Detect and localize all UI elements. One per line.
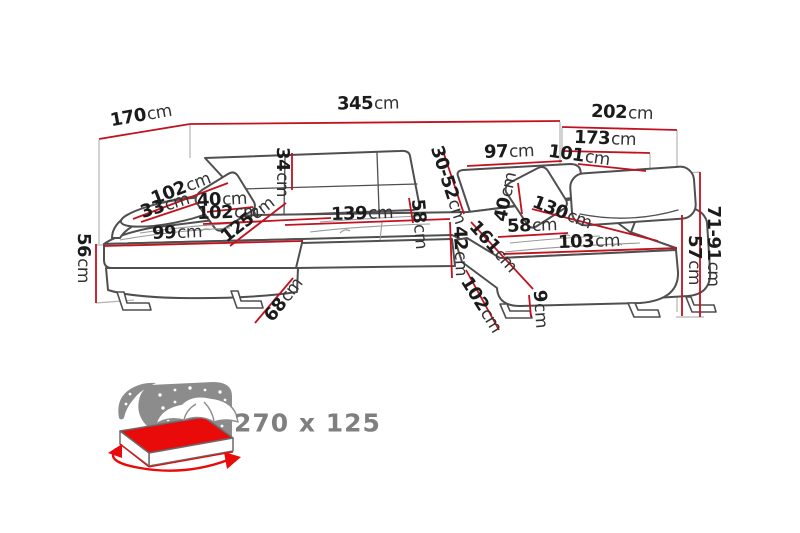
dim-label-99: 99cm [152, 223, 203, 243]
sleeping-area-size-label: 270 x 125 [234, 411, 381, 436]
dim-label-97: 97cm [484, 142, 535, 162]
sofa-drawing-canvas [0, 0, 800, 533]
dim-label-345: 345cm [337, 94, 399, 113]
dim-label-58-mid: 58cm [408, 198, 430, 249]
dim-label-103: 103cm [558, 232, 621, 252]
dim-label-56: 56cm [74, 233, 92, 283]
sofa-dimension-diagram: 170cm 345cm 202cm 173cm 97cm 101cm 30-52… [0, 0, 800, 533]
left-chaise [104, 239, 302, 298]
dim-label-9: 9cm [530, 289, 551, 328]
dim-label-34: 34cm [273, 147, 291, 197]
dim-label-139: 139cm [331, 204, 394, 224]
center-front-face [296, 239, 455, 268]
dim-label-202: 202cm [591, 103, 654, 123]
dim-label-71-91: 71-91cm [704, 206, 722, 287]
sleeping-function-icon [108, 382, 241, 471]
dim-label-57: 57cm [685, 235, 703, 285]
